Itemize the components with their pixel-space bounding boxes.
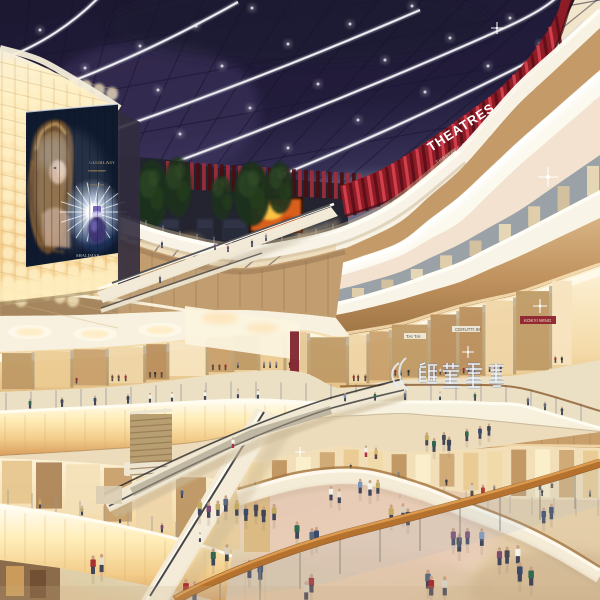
svg-text:TAI TAI: TAI TAI — [406, 334, 421, 339]
svg-text:KOKYI WING: KOKYI WING — [524, 318, 552, 323]
svg-text:GUERLAIN: GUERLAIN — [89, 161, 115, 166]
svg-text:CERUTTI 88: CERUTTI 88 — [455, 327, 481, 332]
svg-text:SHALIMAR: SHALIMAR — [76, 253, 100, 258]
